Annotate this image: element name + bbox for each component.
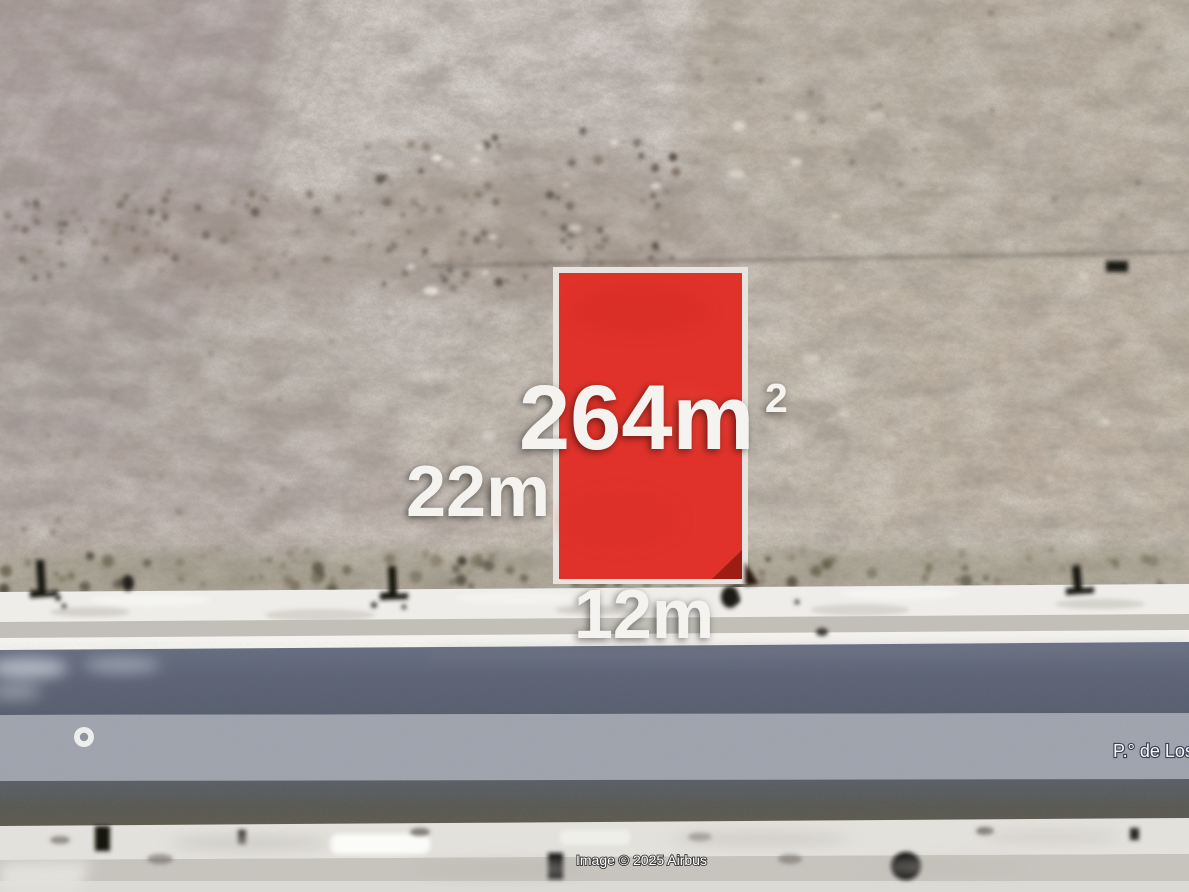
svg-text:22m: 22m [406, 452, 550, 532]
svg-text:2: 2 [765, 375, 788, 421]
svg-text:P.° de Los: P.° de Los [1113, 741, 1189, 761]
svg-text:264m: 264m [519, 367, 754, 469]
svg-text:Image © 2025 Airbus: Image © 2025 Airbus [576, 852, 707, 868]
svg-text:12m: 12m [574, 575, 714, 653]
